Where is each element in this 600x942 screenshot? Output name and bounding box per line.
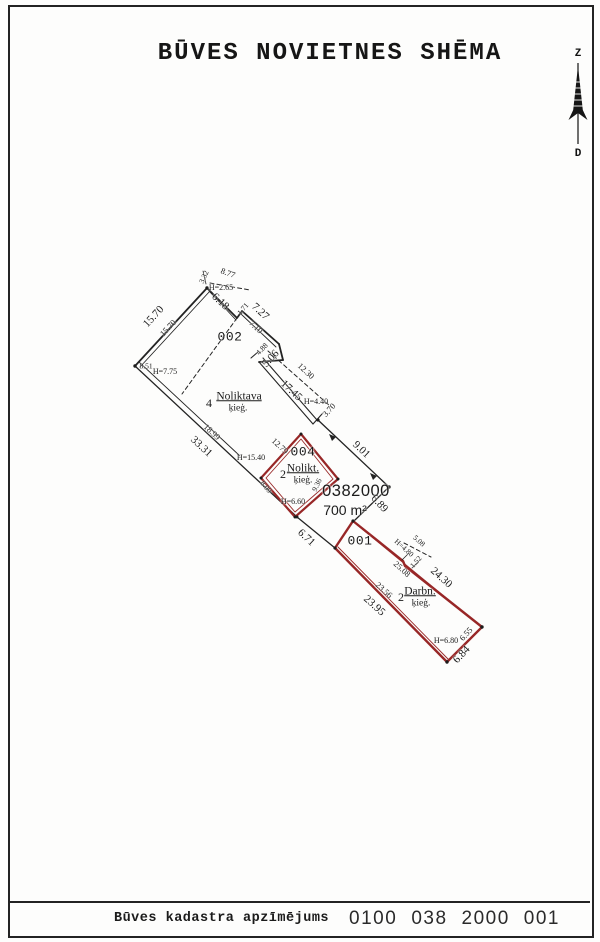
scanned-plan-sheet: BŪVES NOVIETNES SHĒMA Z D: [0, 0, 600, 942]
cadastral-code-group: 0100: [349, 908, 397, 930]
dim-8-77-dashed: [210, 283, 250, 290]
building-002-division-dashed: [182, 318, 237, 394]
building-002-outline: [135, 288, 283, 366]
building-002-inner-walls: [139, 291, 276, 456]
building-004-inner-wall: [266, 439, 333, 512]
footer-label: Būves kadastra apzīmējums: [114, 911, 329, 926]
building-001-outline: [335, 521, 482, 662]
building-002-annex-outline: [251, 352, 322, 424]
boundary-vertex-dots: [133, 286, 483, 663]
boundary-arrows: [329, 434, 377, 480]
footer: Būves kadastra apzīmējums 0100 038 2000 …: [8, 901, 590, 934]
dashed-lines: [182, 283, 431, 557]
building-004-outline: [261, 434, 338, 517]
cadastral-code-group: 038: [411, 908, 447, 930]
annex-roof-dashed: [268, 351, 330, 406]
site-plan-drawing: [0, 0, 600, 942]
cadastral-code-group: 001: [524, 908, 560, 930]
building-001-inner-walls: [338, 524, 478, 659]
cadastral-code-group: 2000: [462, 908, 510, 930]
dim-5-08-dashed: [404, 543, 431, 557]
